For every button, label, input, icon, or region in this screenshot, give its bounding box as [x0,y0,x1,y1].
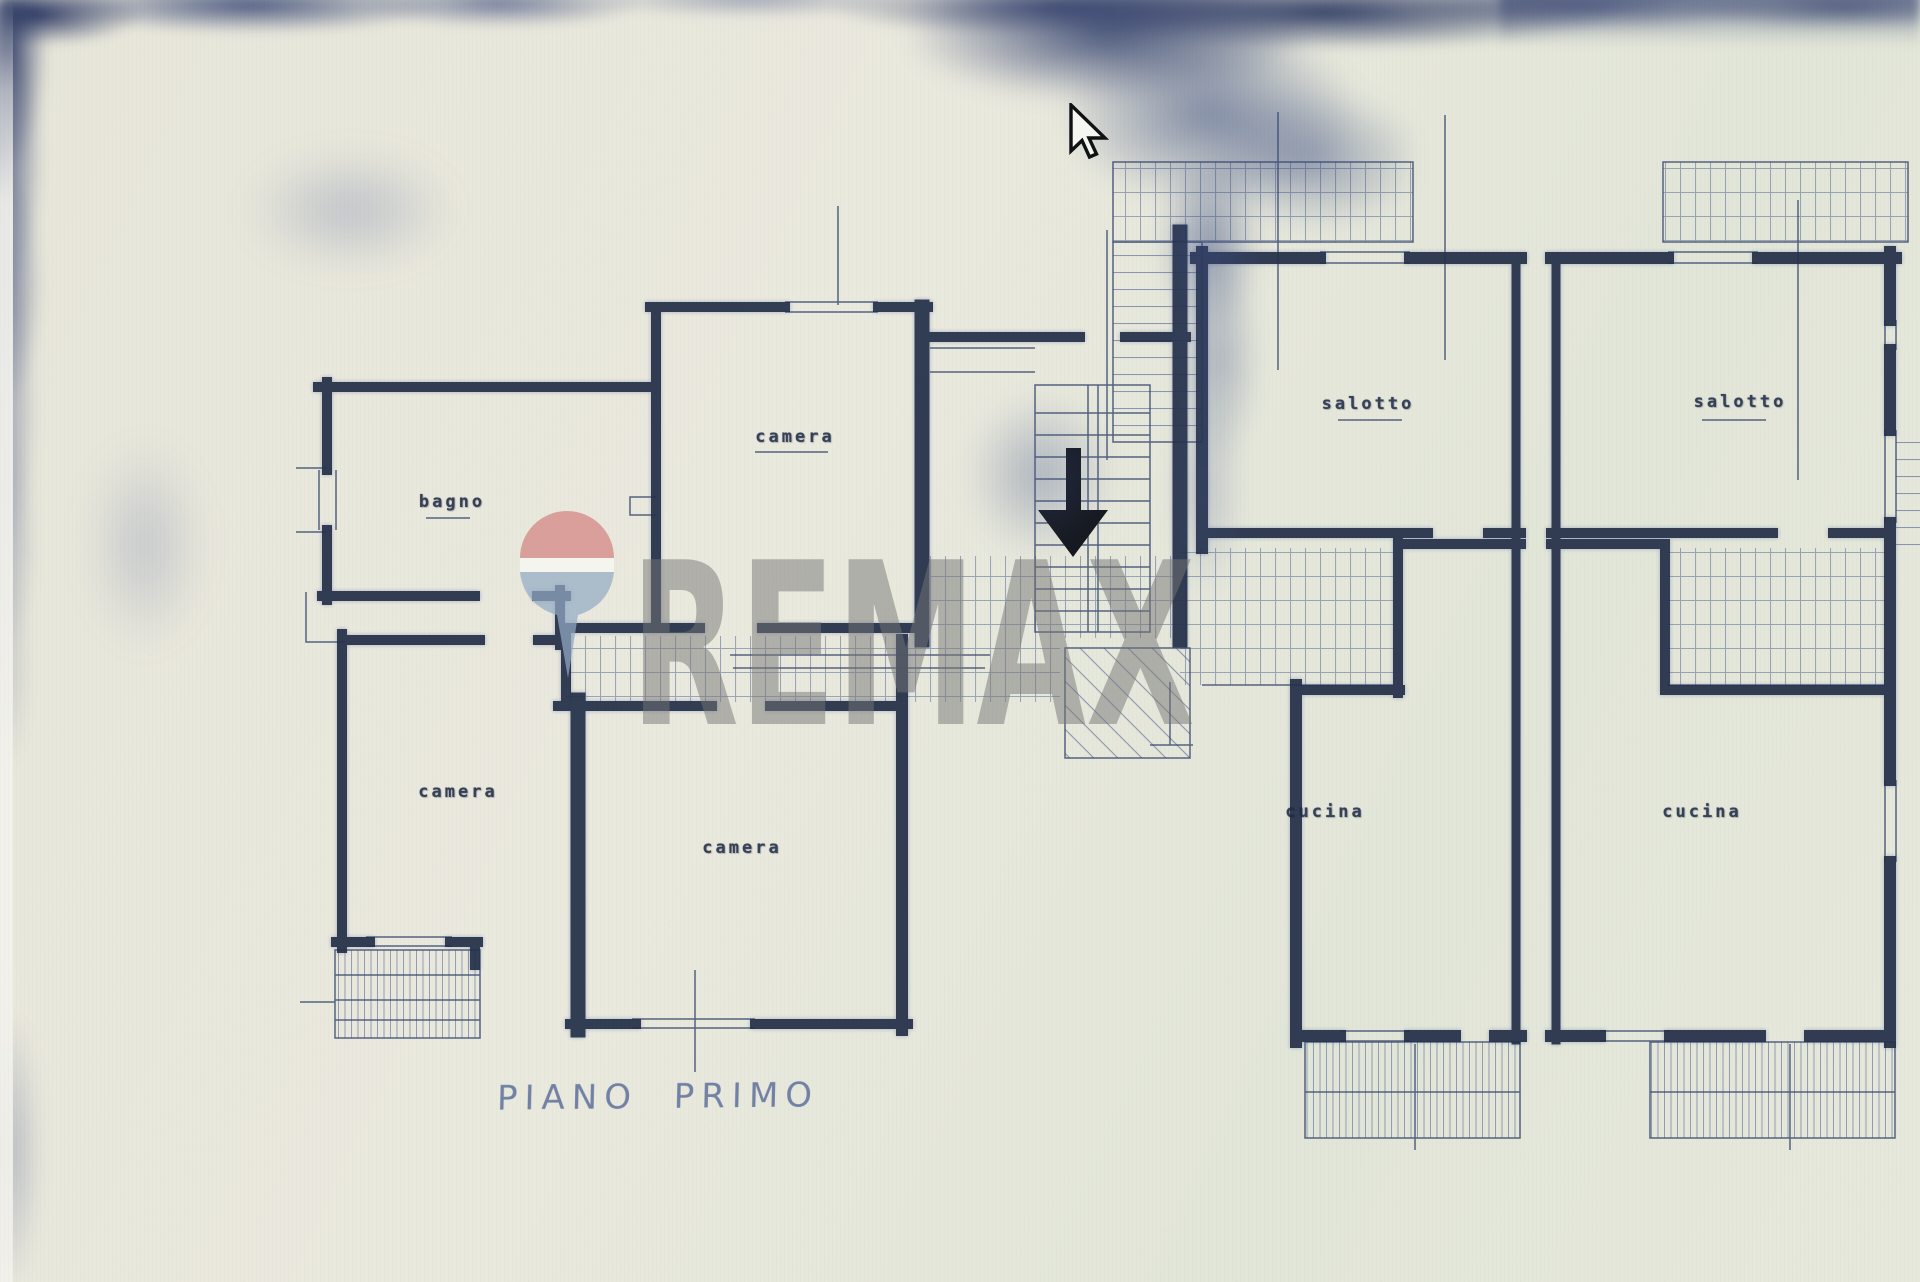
scanned-floorplan-page: { "document": { "kind": "scanned bluepri… [0,0,1920,1282]
room-label-camera-left: camera [418,782,497,802]
room-label-camera-top: camera [755,427,834,447]
scan-grain-overlay [0,0,1920,1282]
room-label-salotto-right: salotto [1694,392,1787,412]
room-label-salotto-left: salotto [1322,394,1415,414]
floor-caption: PIANO PRIMO [497,1075,820,1118]
floorplan-drawing [0,0,1920,1282]
mouse-cursor-icon [1068,103,1114,165]
room-label-cucina-right: cucina [1662,802,1741,822]
room-label-cucina-left: cucina [1285,802,1364,822]
room-label-camera-middle: camera [702,838,781,858]
room-label-bagno: bagno [419,492,485,512]
